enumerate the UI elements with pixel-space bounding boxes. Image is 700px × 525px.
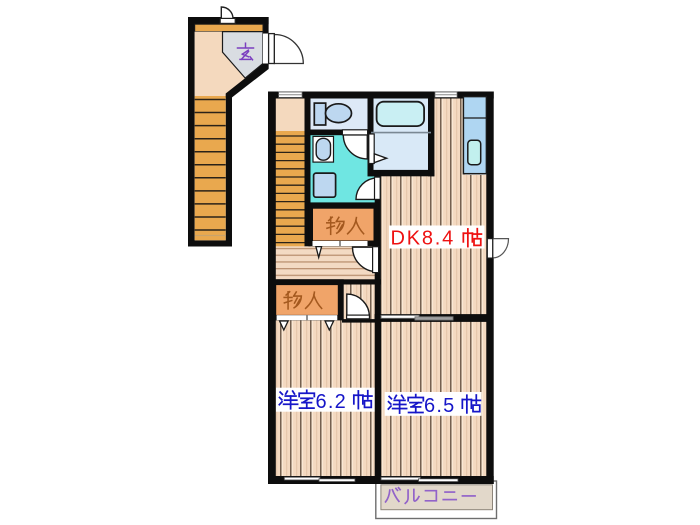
svg-text:6.2: 6.2 (316, 391, 347, 413)
svg-text:DK8.4: DK8.4 (391, 228, 456, 250)
svg-text:6.5: 6.5 (424, 395, 455, 417)
